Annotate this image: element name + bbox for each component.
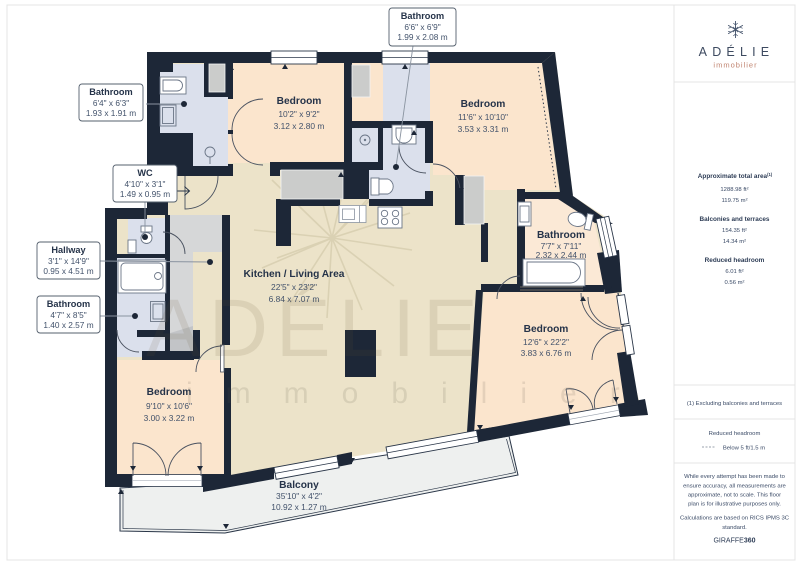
svg-text:Bathroom: Bathroom — [89, 87, 132, 97]
svg-text:standard.: standard. — [722, 525, 747, 531]
svg-text:Bathroom: Bathroom — [47, 299, 90, 309]
svg-text:1.49 x 0.95 m: 1.49 x 0.95 m — [120, 189, 170, 199]
svg-text:6.01 ft²: 6.01 ft² — [725, 269, 743, 275]
svg-text:10'2" x 9'2": 10'2" x 9'2" — [278, 109, 319, 119]
svg-text:3.12 x 2.80 m: 3.12 x 2.80 m — [274, 121, 325, 131]
svg-text:Balconies and terraces: Balconies and terraces — [700, 216, 770, 223]
svg-text:Below 5 ft/1.5 m: Below 5 ft/1.5 m — [723, 446, 765, 452]
svg-text:Bedroom: Bedroom — [524, 324, 569, 335]
svg-text:3.83 x 6.76 m: 3.83 x 6.76 m — [521, 348, 572, 358]
svg-text:Reduced headroom: Reduced headroom — [705, 257, 765, 264]
svg-text:immobilier: immobilier — [186, 377, 653, 410]
svg-text:11'6" x 10'10": 11'6" x 10'10" — [458, 112, 508, 122]
svg-text:Bedroom: Bedroom — [147, 387, 192, 398]
svg-text:Bathroom: Bathroom — [401, 11, 444, 21]
svg-text:2.32 x 2.44 m: 2.32 x 2.44 m — [536, 250, 587, 260]
svg-text:3.00 x 3.22 m: 3.00 x 3.22 m — [144, 413, 195, 423]
svg-text:immobilier: immobilier — [713, 61, 757, 70]
svg-text:1288.98 ft²: 1288.98 ft² — [720, 187, 748, 193]
svg-text:6'4" x 6'3": 6'4" x 6'3" — [93, 98, 129, 108]
svg-text:4'10" x 3'1": 4'10" x 3'1" — [125, 179, 166, 189]
svg-text:12'6" x 22'2": 12'6" x 22'2" — [523, 337, 569, 347]
svg-text:Balcony: Balcony — [279, 480, 319, 491]
svg-text:35'10" x 4'2": 35'10" x 4'2" — [276, 491, 322, 501]
svg-text:ADÉLIE: ADÉLIE — [146, 283, 486, 374]
svg-text:1.93 x 1.91 m: 1.93 x 1.91 m — [86, 108, 136, 118]
svg-text:4'7" x 8'5": 4'7" x 8'5" — [50, 310, 86, 320]
svg-text:plan is for illustrative purpo: plan is for illustrative purposes only. — [688, 502, 781, 508]
svg-text:ensure accuracy, all measureme: ensure accuracy, all measurements are — [683, 484, 786, 490]
svg-text:119.75 m²: 119.75 m² — [721, 198, 747, 204]
svg-text:WC: WC — [137, 168, 153, 178]
svg-text:(1) Excluding balconies and te: (1) Excluding balconies and terraces — [687, 401, 782, 407]
svg-text:GIRAFFE360: GIRAFFE360 — [713, 538, 755, 545]
svg-text:Bedroom: Bedroom — [277, 96, 322, 107]
svg-text:3'1" x 14'9": 3'1" x 14'9" — [48, 256, 89, 266]
svg-text:0.95 x 4.51 m: 0.95 x 4.51 m — [43, 266, 93, 276]
svg-text:Bedroom: Bedroom — [461, 99, 506, 110]
svg-text:Reduced headroom: Reduced headroom — [709, 431, 761, 437]
svg-text:Bathroom: Bathroom — [537, 230, 585, 241]
svg-text:1.99 x 2.08 m: 1.99 x 2.08 m — [397, 32, 447, 42]
svg-text:Calculations are based on RICS: Calculations are based on RICS IPMS 3C — [680, 516, 790, 522]
svg-text:approximate, not to scale. Thi: approximate, not to scale. This floor — [688, 493, 781, 499]
svg-text:Kitchen / Living Area: Kitchen / Living Area — [244, 269, 345, 280]
svg-text:Hallway: Hallway — [51, 245, 86, 255]
svg-text:Approximate total area(1): Approximate total area(1) — [698, 172, 773, 180]
svg-text:154.35 ft²: 154.35 ft² — [722, 228, 747, 234]
svg-text:14.34 m²: 14.34 m² — [723, 239, 746, 245]
svg-text:0.56 m²: 0.56 m² — [725, 280, 745, 286]
svg-text:10.92 x 1.27 m: 10.92 x 1.27 m — [271, 502, 326, 512]
svg-text:3.53 x 3.31 m: 3.53 x 3.31 m — [458, 124, 509, 134]
svg-text:While every attempt has been m: While every attempt has been made to — [684, 474, 786, 480]
svg-text:1.40 x 2.57 m: 1.40 x 2.57 m — [43, 320, 93, 330]
svg-text:ADÉLIE: ADÉLIE — [699, 44, 775, 59]
svg-text:6'6" x 6'9": 6'6" x 6'9" — [404, 22, 440, 32]
